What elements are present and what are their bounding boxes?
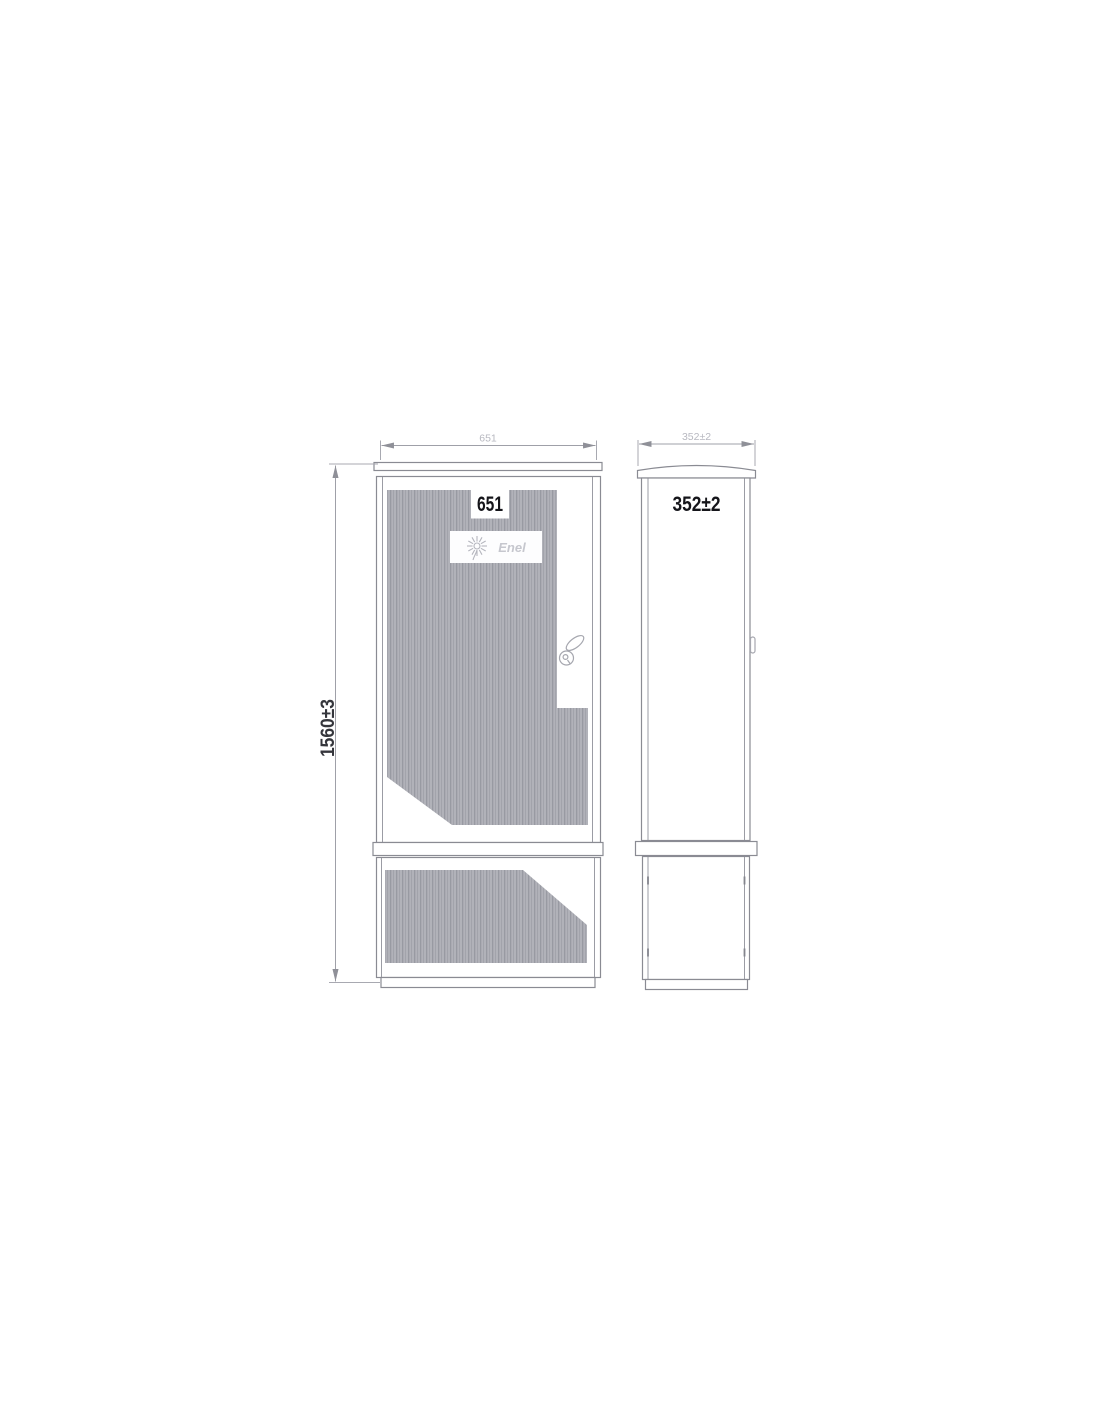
technical-drawing-page: Enel bbox=[0, 0, 1100, 1422]
side-lower-body bbox=[643, 857, 750, 980]
width-overlay-label: 651 bbox=[471, 488, 509, 519]
front-top-cap bbox=[374, 463, 602, 471]
front-width-dimension: 651 bbox=[381, 433, 597, 461]
front-width-dim-text: 651 bbox=[479, 433, 497, 445]
cabinet-technical-drawing: Enel bbox=[0, 0, 1100, 1422]
depth-overlay-label: 352±2 bbox=[673, 493, 721, 516]
front-plinth bbox=[381, 978, 595, 988]
side-mid-band bbox=[636, 842, 758, 856]
side-plinth bbox=[646, 980, 748, 990]
height-dim-label: 1560±3 bbox=[318, 699, 339, 757]
side-depth-dim-text: 352±2 bbox=[682, 431, 711, 443]
side-view bbox=[636, 466, 758, 990]
logo-plate bbox=[450, 531, 542, 563]
height-dimension: 1560±3 bbox=[318, 464, 380, 983]
front-mid-band bbox=[373, 843, 603, 856]
logo-text: Enel bbox=[498, 540, 526, 555]
side-lock-profile bbox=[751, 637, 756, 653]
side-depth-dimension: 352±2 bbox=[638, 431, 755, 466]
width-label-text: 651 bbox=[477, 493, 503, 516]
side-top-cap bbox=[638, 466, 756, 479]
front-view: Enel bbox=[373, 463, 603, 988]
side-upper-body bbox=[642, 478, 751, 841]
enel-logo: Enel bbox=[450, 531, 542, 563]
